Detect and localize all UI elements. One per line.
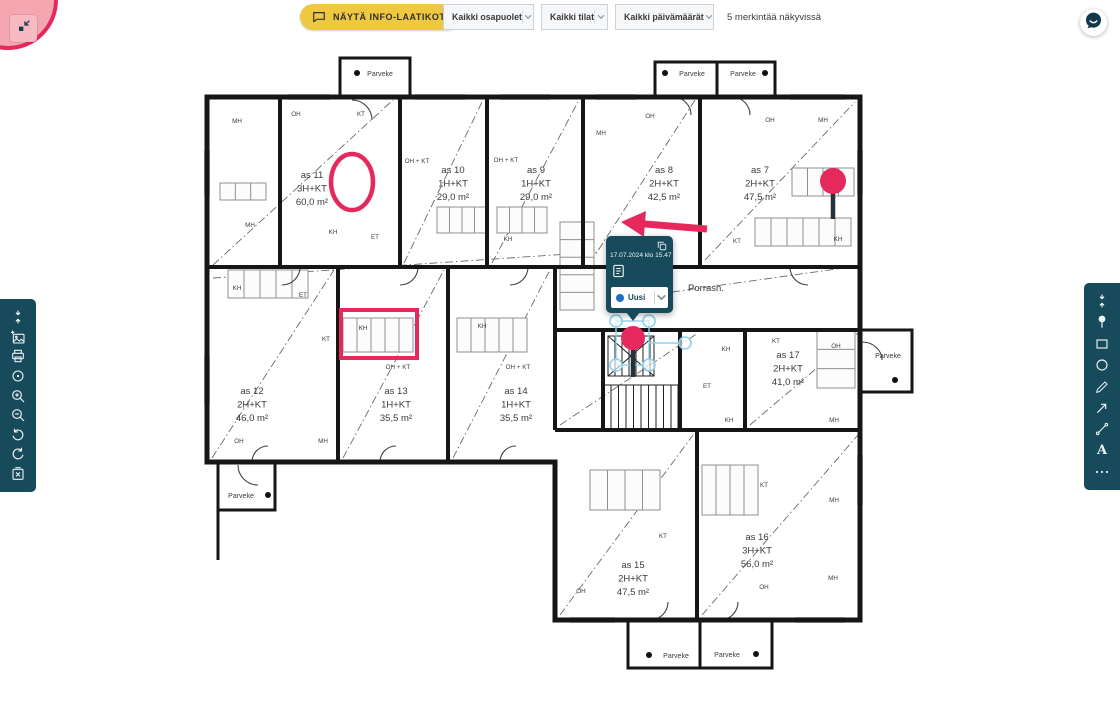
- door-arc: [720, 602, 738, 620]
- room-label: KT: [322, 336, 330, 343]
- target-button[interactable]: [3, 367, 33, 385]
- balcony-wall: [628, 620, 700, 668]
- measure-icon: [1094, 421, 1110, 437]
- text-tool-icon: A: [1097, 444, 1107, 457]
- selection-handle[interactable]: [610, 359, 622, 371]
- fixture: [497, 207, 547, 233]
- left-toolbar: [0, 299, 36, 492]
- show-info-boxes-button[interactable]: NÄYTÄ INFO-LAATIKOT: [300, 4, 460, 30]
- stairs: [604, 336, 678, 430]
- room-label: OH: [234, 438, 244, 445]
- arrow-tool-icon: [1094, 400, 1110, 416]
- room-label: OH: [576, 588, 586, 595]
- room-label: ET: [299, 292, 307, 299]
- door-arc: [732, 97, 750, 115]
- copy-icon[interactable]: [656, 240, 668, 252]
- balcony-label: Parveke: [228, 493, 254, 500]
- redo-icon: [10, 446, 26, 462]
- room-label: KH: [834, 236, 843, 243]
- print-button[interactable]: [3, 347, 33, 365]
- room-label: KH: [725, 417, 734, 424]
- room-label: KT: [760, 482, 768, 489]
- room-label: KH: [722, 346, 731, 353]
- room-label: ET: [371, 234, 379, 241]
- room-label: KT: [659, 533, 667, 540]
- apartment-label: as 82H+KT42,5 m²: [648, 165, 680, 203]
- apartment-label: as 122H+KT46,0 m²: [236, 386, 268, 424]
- print-icon: [10, 348, 26, 364]
- filter-parties-value: Kaikki osapuolet: [444, 12, 522, 22]
- undo-icon: [10, 427, 26, 443]
- selection-handle[interactable]: [679, 337, 691, 349]
- target-icon: [10, 368, 26, 384]
- room-label: KH: [359, 325, 368, 332]
- chevron-down-icon: [655, 291, 668, 304]
- door-arc: [673, 97, 691, 115]
- balcony-dot: [265, 492, 271, 498]
- filter-spaces-value: Kaikki tilat: [542, 12, 594, 22]
- room-label: OH: [765, 117, 775, 124]
- status-value: Uusi: [628, 293, 654, 302]
- pencil-icon: [1094, 379, 1110, 395]
- room-label: OH + KT: [494, 157, 519, 164]
- fixture: [343, 318, 413, 352]
- room-label: OH: [291, 111, 301, 118]
- visible-markings-count: 5 merkintää näkyvissä: [727, 12, 821, 23]
- balcony-dot: [762, 70, 768, 76]
- zoom-in-button[interactable]: [3, 387, 33, 405]
- ellipse-tool-button[interactable]: [1087, 356, 1117, 374]
- door-arc: [400, 267, 418, 285]
- dimension-line: [702, 435, 858, 615]
- balcony-label: Parveke: [663, 653, 689, 660]
- zoom-out-button[interactable]: [3, 406, 33, 424]
- balcony-wall: [655, 62, 717, 97]
- fixture: [220, 183, 266, 200]
- filter-dates-dropdown[interactable]: Kaikki päivämäärät: [615, 4, 714, 30]
- room-label: MH: [829, 497, 839, 504]
- collapse-toolbar-button[interactable]: [1087, 292, 1117, 310]
- zoom-in-icon: [10, 388, 26, 404]
- chevron-down-icon: [522, 12, 533, 22]
- right-toolbar: A: [1084, 283, 1120, 490]
- balcony-label: Parveke: [367, 71, 393, 78]
- chat-icon: [1084, 11, 1103, 35]
- chevron-down-icon: [704, 12, 714, 22]
- add-image-button[interactable]: [3, 328, 33, 346]
- show-info-boxes-label: NÄYTÄ INFO-LAATIKOT: [333, 12, 445, 22]
- delete-icon: [10, 466, 26, 482]
- balcony-label: Parveke: [714, 652, 740, 659]
- room-label: KT: [733, 238, 741, 245]
- annotation-timestamp: 17.07.2024 klo 15.47: [610, 252, 672, 259]
- selection-handle[interactable]: [610, 315, 622, 327]
- balcony-wall: [700, 620, 772, 668]
- room-label: OH: [645, 113, 655, 120]
- room-label: KT: [772, 338, 780, 345]
- annotation-popup: 17.07.2024 klo 15.47 Uusi: [606, 236, 673, 313]
- measure-button[interactable]: [1087, 420, 1117, 438]
- ellipse-tool-icon: [1094, 357, 1110, 373]
- add-image-icon: [10, 329, 26, 345]
- balcony-dot: [892, 377, 898, 383]
- annotation-arrow[interactable]: [621, 211, 707, 237]
- filter-parties-dropdown[interactable]: Kaikki osapuolet: [443, 4, 534, 30]
- chat-button[interactable]: [1080, 9, 1107, 36]
- door-arc: [790, 267, 808, 285]
- room-label: MH: [318, 438, 328, 445]
- apartment-label: as 91H+KT29,0 m²: [520, 165, 552, 203]
- room-label: MH: [596, 130, 606, 137]
- rectangle-tool-icon: [1094, 336, 1110, 352]
- room-label: KT: [357, 111, 365, 118]
- fixture: [437, 207, 487, 233]
- collapse-toolbar-icon: [10, 309, 26, 325]
- pencil-button[interactable]: [1087, 378, 1117, 396]
- room-label: OH + KT: [506, 364, 531, 371]
- selection-handle[interactable]: [643, 359, 655, 371]
- apartment-label: as 72H+KT47,5 m²: [744, 165, 776, 203]
- filter-dates-value: Kaikki päivämäärät: [616, 12, 704, 22]
- room-label: OH + KT: [405, 158, 430, 165]
- fixture: [702, 465, 758, 515]
- annotation-pin-selected[interactable]: [621, 326, 645, 377]
- room-label: KH: [329, 229, 338, 236]
- floor-plan-app: MHOHKTOH + KTOH + KTMHOHOHMHMHKHETKHKTKH…: [0, 0, 1120, 706]
- fixture: [590, 470, 660, 510]
- floor-plan-canvas[interactable]: MHOHKTOH + KTOH + KTMHOHOHMHMHKHETKHKTKH…: [195, 50, 935, 680]
- selection-handle[interactable]: [643, 315, 655, 327]
- rectangle-tool-button[interactable]: [1087, 335, 1117, 353]
- apartment-label: as 163H+KT56,0 m²: [741, 532, 773, 570]
- door-arc: [650, 602, 668, 620]
- pin-icon: [1094, 314, 1110, 330]
- status-dropdown[interactable]: Uusi: [611, 287, 668, 308]
- delete-button[interactable]: [3, 465, 33, 483]
- room-label: MH: [829, 417, 839, 424]
- redo-button[interactable]: [3, 445, 33, 463]
- room-label: KH: [233, 285, 242, 292]
- apartment-label: as 152H+KT47,5 m²: [617, 560, 649, 598]
- fixture: [457, 318, 527, 352]
- dimension-line: [453, 270, 550, 458]
- text-tool-button[interactable]: A: [1087, 442, 1117, 460]
- collapse-toolbar-icon: [1094, 293, 1110, 309]
- balcony-label: Parveke: [875, 353, 901, 360]
- apartment-label: as 141H+KT35,5 m²: [500, 386, 532, 424]
- fixture: [228, 270, 308, 298]
- apartment-label: as 113H+KT60,0 m²: [296, 170, 328, 208]
- room-label: OH: [759, 584, 769, 591]
- floor-plan-svg[interactable]: MHOHKTOH + KTOH + KTMHOHOHMHMHKHETKHKTKH…: [195, 50, 935, 680]
- collapse-toolbar-button[interactable]: [3, 308, 33, 326]
- room-label: KH: [504, 236, 513, 243]
- room-label: OH: [831, 343, 841, 350]
- balcony-dot: [646, 652, 652, 658]
- fixture: [817, 330, 855, 388]
- status-dot: [616, 294, 624, 302]
- room-label: MH: [232, 118, 242, 125]
- room-label: MH: [245, 222, 255, 229]
- room-label: ET: [703, 383, 711, 390]
- apartment-label: as 172H+KT41,0 m²: [772, 350, 804, 388]
- stairwell-label: Porrash.: [688, 283, 724, 294]
- door-arc: [510, 267, 528, 285]
- room-label: MH: [828, 575, 838, 582]
- filter-spaces-dropdown[interactable]: Kaikki tilat: [541, 4, 608, 30]
- more-button[interactable]: [1087, 463, 1117, 481]
- more-icon: [1094, 464, 1110, 480]
- pin-button[interactable]: [1087, 313, 1117, 331]
- balcony-wall: [860, 330, 912, 392]
- balcony-wall: [218, 462, 275, 510]
- room-label: MH: [818, 117, 828, 124]
- balcony-dot: [753, 651, 759, 657]
- balcony-wall: [717, 62, 775, 97]
- top-bar: NÄYTÄ INFO-LAATIKOT Kaikki osapuolet Kai…: [0, 0, 1120, 36]
- balcony-dot: [662, 70, 668, 76]
- undo-button[interactable]: [3, 426, 33, 444]
- balcony-dot: [354, 70, 360, 76]
- room-label: KH: [478, 323, 487, 330]
- balcony-label: Parveke: [679, 71, 705, 78]
- apartment-label: as 131H+KT35,5 m²: [380, 386, 412, 424]
- annotation-ellipse[interactable]: [331, 154, 373, 210]
- balcony-label: Parveke: [730, 71, 756, 78]
- arrow-tool-button[interactable]: [1087, 399, 1117, 417]
- door-arc: [238, 465, 258, 485]
- note-icon[interactable]: [611, 263, 626, 279]
- chevron-down-icon: [595, 12, 607, 22]
- speech-bubble-icon: [312, 10, 326, 24]
- apartment-label: as 101H+KT29,0 m²: [437, 165, 469, 203]
- room-label: OH + KT: [386, 364, 411, 371]
- zoom-out-icon: [10, 407, 26, 423]
